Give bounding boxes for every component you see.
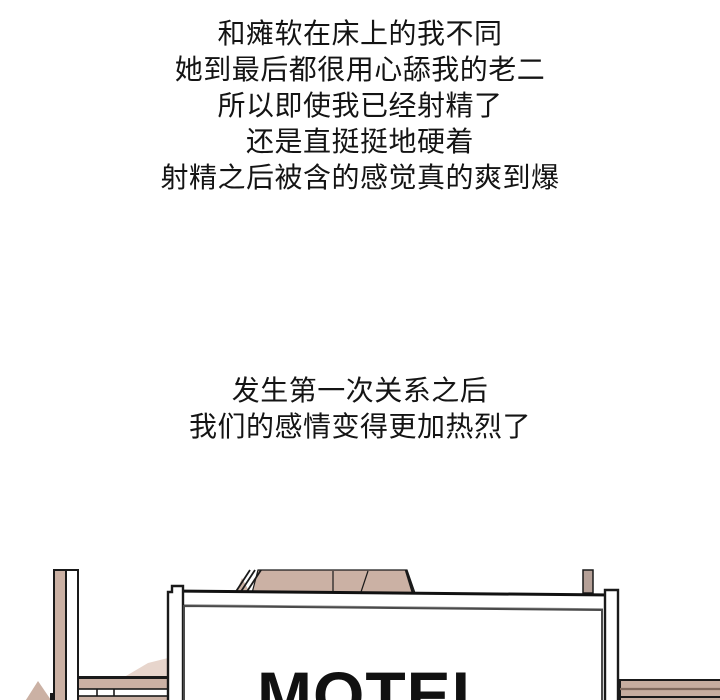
narration-line: 和瘫软在床上的我不同 [0, 16, 720, 52]
rooftop-stub [583, 570, 593, 593]
corner-wedge [24, 681, 53, 700]
narration-block-middle: 发生第一次关系之后 我们的感情变得更加热烈了 [0, 373, 720, 445]
motel-building-drawing: MOTEL [0, 550, 720, 700]
narration-line: 她到最后都很用心舔我的老二 [0, 52, 720, 88]
narration-line: 还是直挺挺地硬着 [0, 124, 720, 160]
comic-page: 和瘫软在床上的我不同 她到最后都很用心舔我的老二 所以即使我已经射精了 还是直挺… [0, 0, 720, 700]
left-ledge-top-edge [78, 676, 168, 679]
lamp-pole-shade [55, 571, 66, 700]
motel-building-illustration: MOTEL [0, 550, 720, 700]
narration-line: 所以即使我已经射精了 [0, 88, 720, 124]
motel-sign-text: MOTEL [257, 658, 493, 700]
narration-line: 发生第一次关系之后 [0, 373, 720, 409]
left-ledge-louver-row [78, 689, 168, 696]
narration-line: 我们的感情变得更加热烈了 [0, 409, 720, 445]
narration-line: 射精之后被含的感觉真的爽到爆 [0, 160, 720, 196]
sign-post-right [605, 590, 618, 700]
narration-block-top: 和瘫软在床上的我不同 她到最后都很用心舔我的老二 所以即使我已经射精了 还是直挺… [0, 16, 720, 196]
sign-post-left [168, 586, 183, 700]
